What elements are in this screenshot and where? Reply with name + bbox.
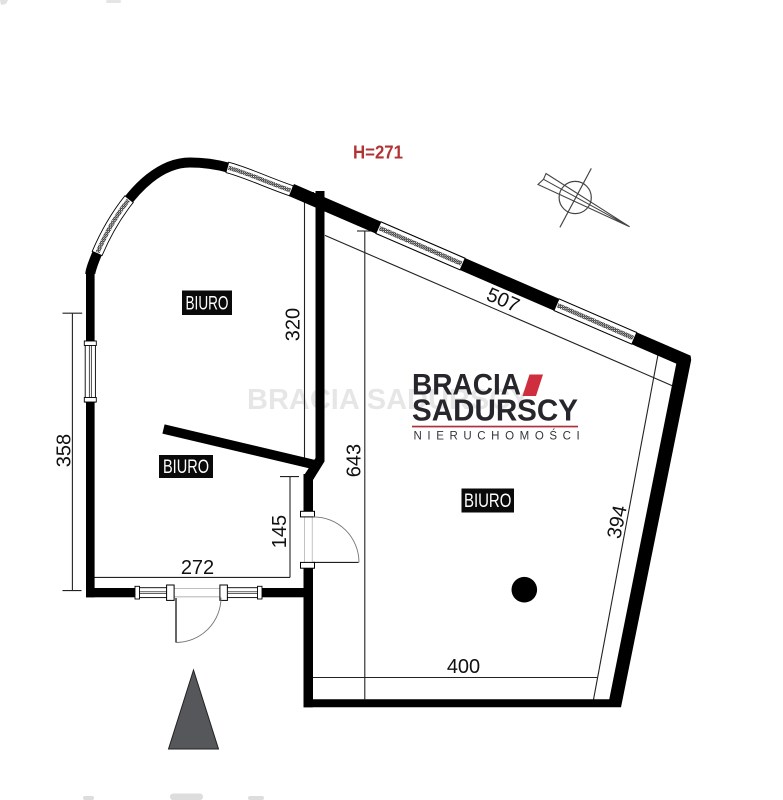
svg-text:145: 145 — [269, 515, 291, 548]
svg-text:SADURSCY: SADURSCY — [412, 393, 578, 428]
svg-text:H=271: H=271 — [353, 142, 403, 163]
svg-text:BIURO: BIURO — [464, 491, 512, 512]
svg-text:358: 358 — [54, 434, 76, 467]
svg-text:BIURO: BIURO — [163, 457, 209, 478]
svg-text:320: 320 — [283, 308, 305, 341]
svg-text:NIERUCHOMOŚCI: NIERUCHOMOŚCI — [414, 430, 586, 443]
svg-text:272: 272 — [181, 557, 214, 579]
svg-text:BIURO: BIURO — [186, 294, 229, 315]
svg-text:643: 643 — [344, 444, 366, 477]
svg-text:400: 400 — [447, 656, 480, 678]
